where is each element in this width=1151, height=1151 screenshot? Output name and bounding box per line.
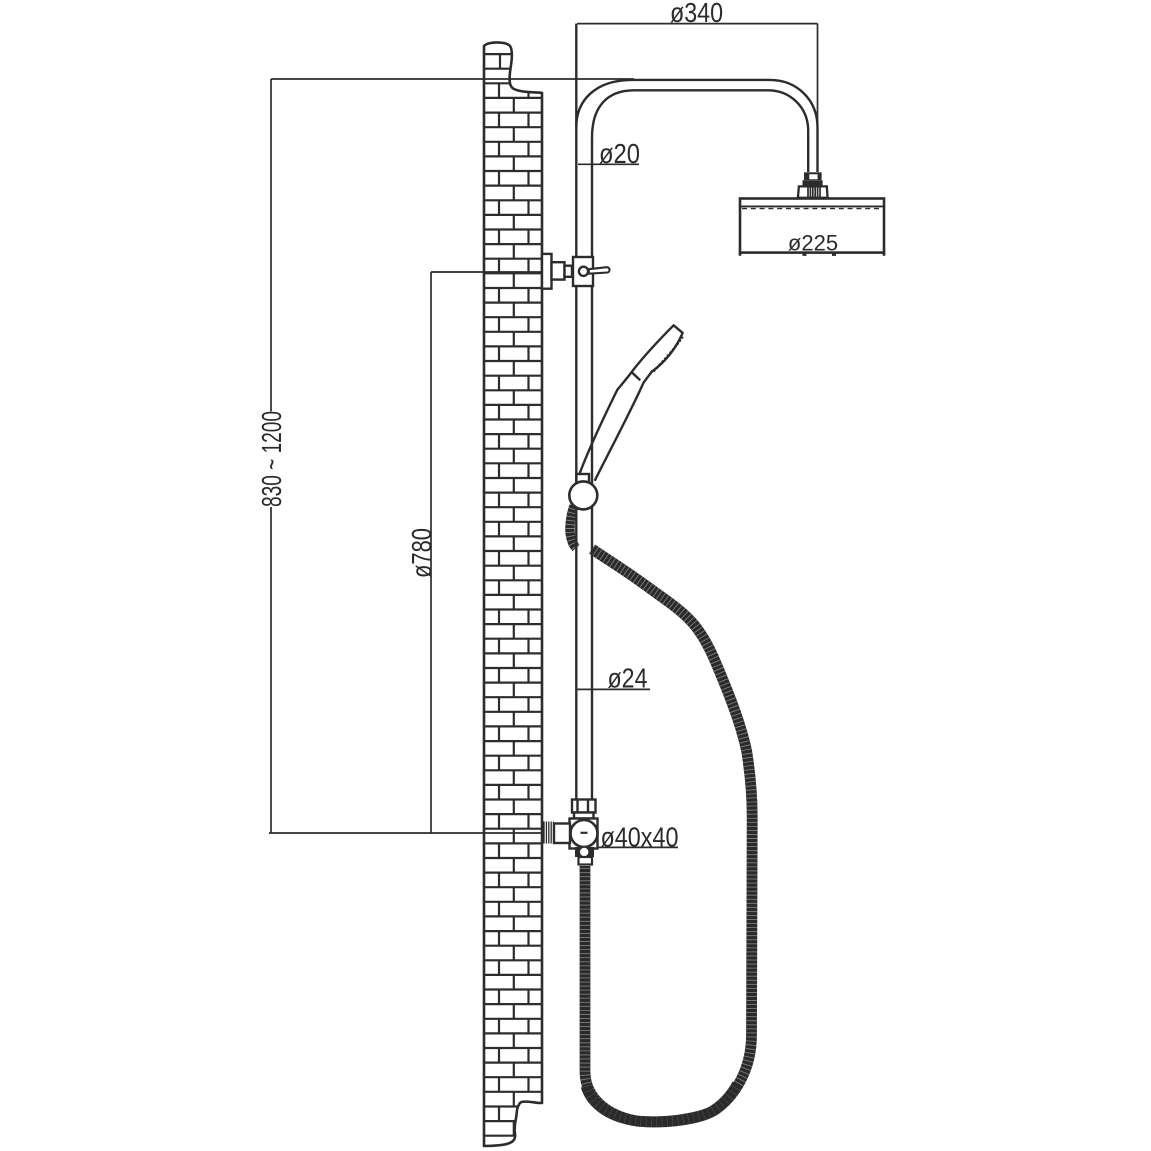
svg-text:ø225: ø225 bbox=[788, 231, 838, 256]
svg-text:ø340: ø340 bbox=[670, 0, 723, 28]
svg-text:ø24: ø24 bbox=[608, 663, 648, 694]
svg-text:ø780: ø780 bbox=[406, 528, 437, 578]
svg-text:ø40x40: ø40x40 bbox=[601, 821, 679, 852]
svg-text:830 ~ 1200: 830 ~ 1200 bbox=[256, 411, 287, 507]
svg-text:ø20: ø20 bbox=[599, 138, 640, 169]
